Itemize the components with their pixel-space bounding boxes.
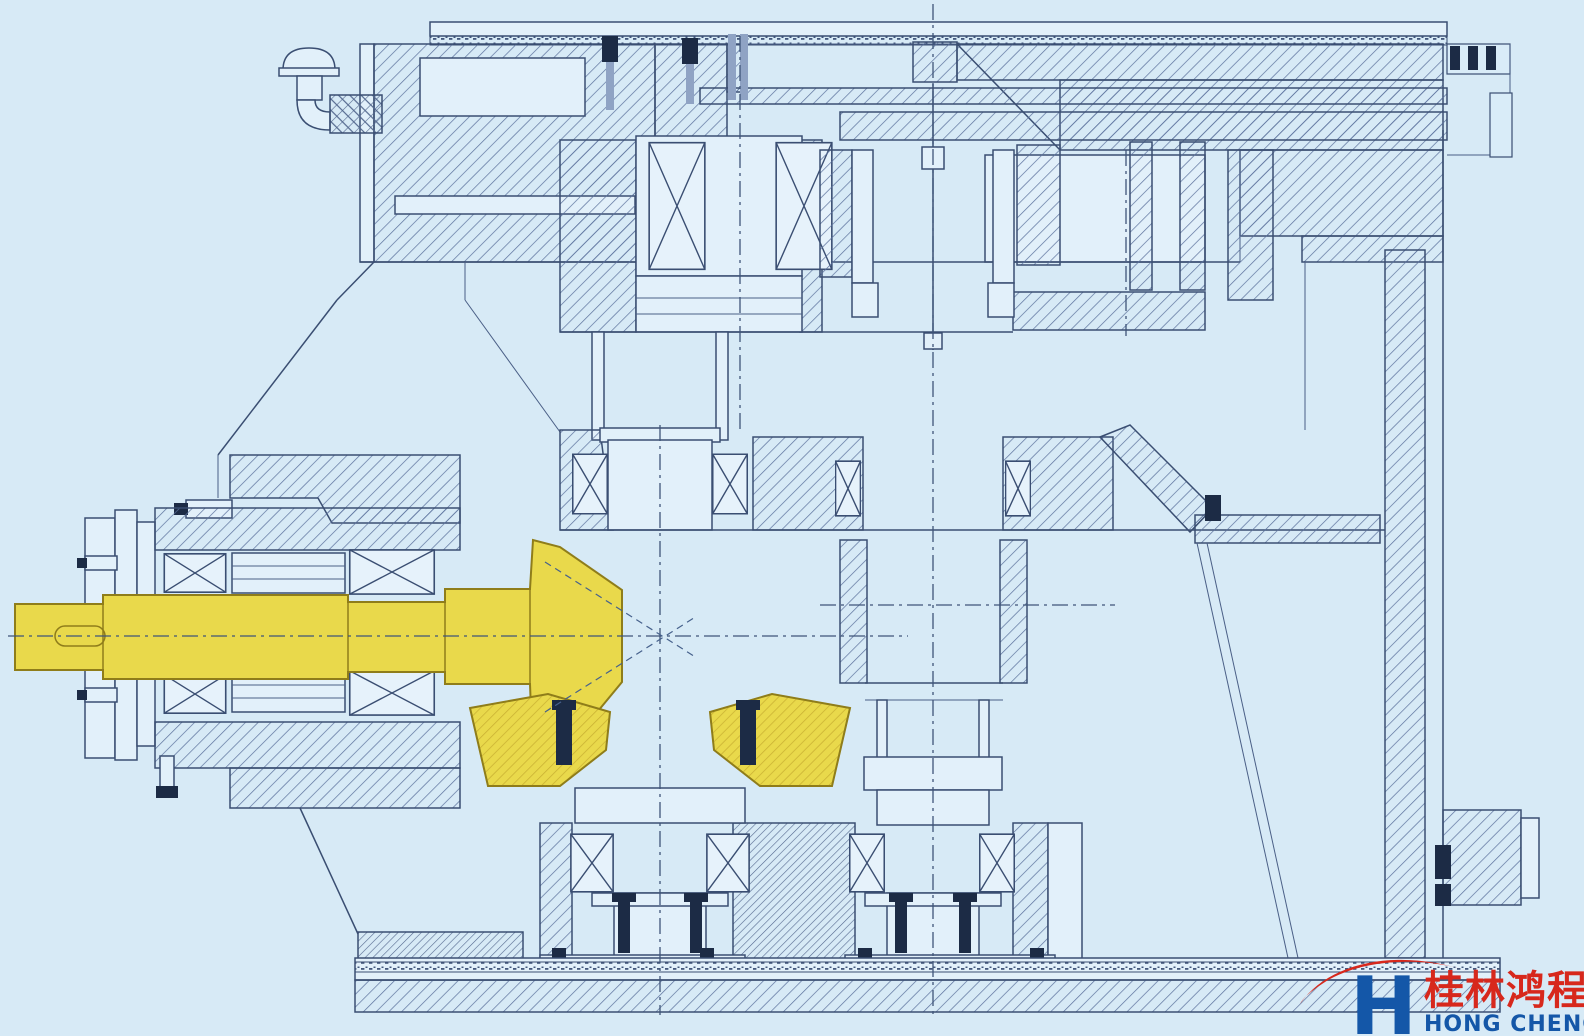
logo-company-name-cn: 桂林鸿程 [1424,968,1584,1014]
lower-bearing-left-b-icon [707,834,749,892]
main-shaft-bearing-right-icon [1006,461,1031,516]
input-bearing-bottom-right-icon [350,671,434,715]
main-shaft-bearing-left-icon [836,461,861,516]
input-bearing-top-left-icon [164,554,225,592]
input-bearing-bottom-left-icon [164,675,225,713]
lower-bearing-right-a-icon [850,834,885,892]
intermediate-shaft-bearing-right-icon [713,454,748,514]
base-plate [355,958,1500,1012]
intermediate-shaft-bearing-left-icon [573,454,608,514]
upper-bearing-group [560,136,832,332]
logo-letter-h: H [1350,960,1417,1036]
lower-bearing-right-b-icon [980,834,1015,892]
upper-bearing-left-icon [649,143,705,270]
lower-bearing-left-a-icon [571,834,613,892]
logo-company-name-en: HONG CHENG [1424,1012,1584,1036]
engineering-drawing-canvas: H 桂林鸿程 HONG CHENG [0,0,1584,1036]
gearbox-sectional-drawing: H 桂林鸿程 HONG CHENG [0,0,1584,1036]
input-bearing-top-right-icon [350,550,434,594]
